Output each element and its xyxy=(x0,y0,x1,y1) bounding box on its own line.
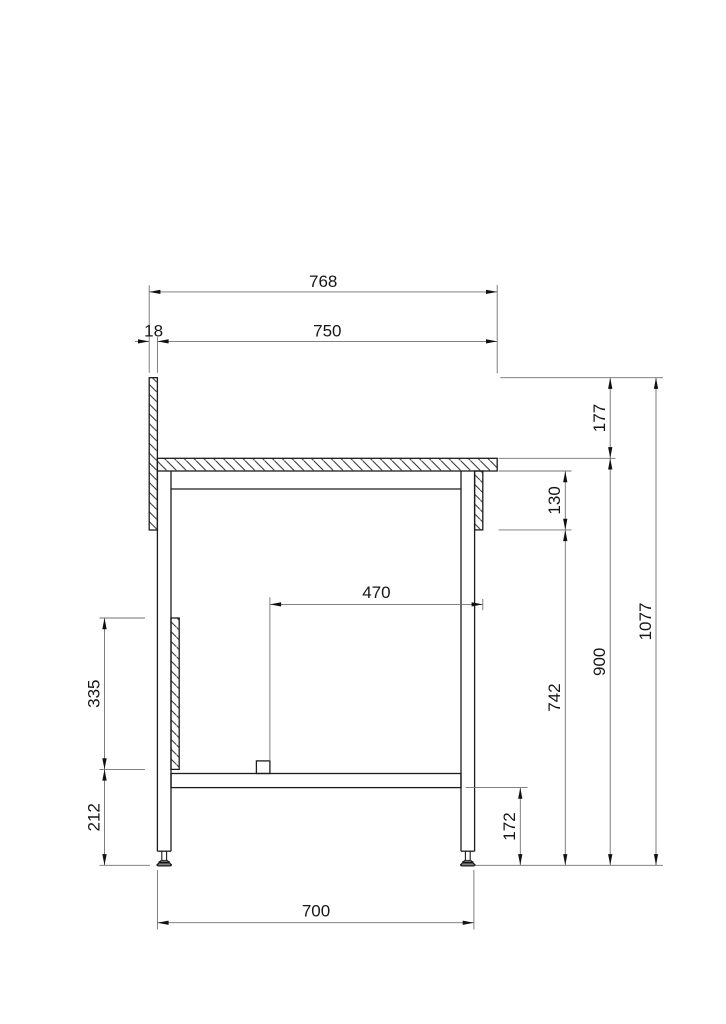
svg-text:335: 335 xyxy=(84,680,103,708)
svg-text:130: 130 xyxy=(545,486,564,514)
svg-text:742: 742 xyxy=(545,683,564,711)
svg-text:212: 212 xyxy=(84,803,103,831)
svg-text:177: 177 xyxy=(590,404,609,432)
svg-text:18: 18 xyxy=(144,322,163,341)
svg-text:768: 768 xyxy=(309,272,337,291)
svg-text:700: 700 xyxy=(302,902,330,921)
svg-text:750: 750 xyxy=(313,322,341,341)
svg-text:172: 172 xyxy=(500,812,519,840)
svg-text:1077: 1077 xyxy=(636,603,655,641)
svg-text:470: 470 xyxy=(362,583,390,602)
svg-text:900: 900 xyxy=(590,648,609,676)
